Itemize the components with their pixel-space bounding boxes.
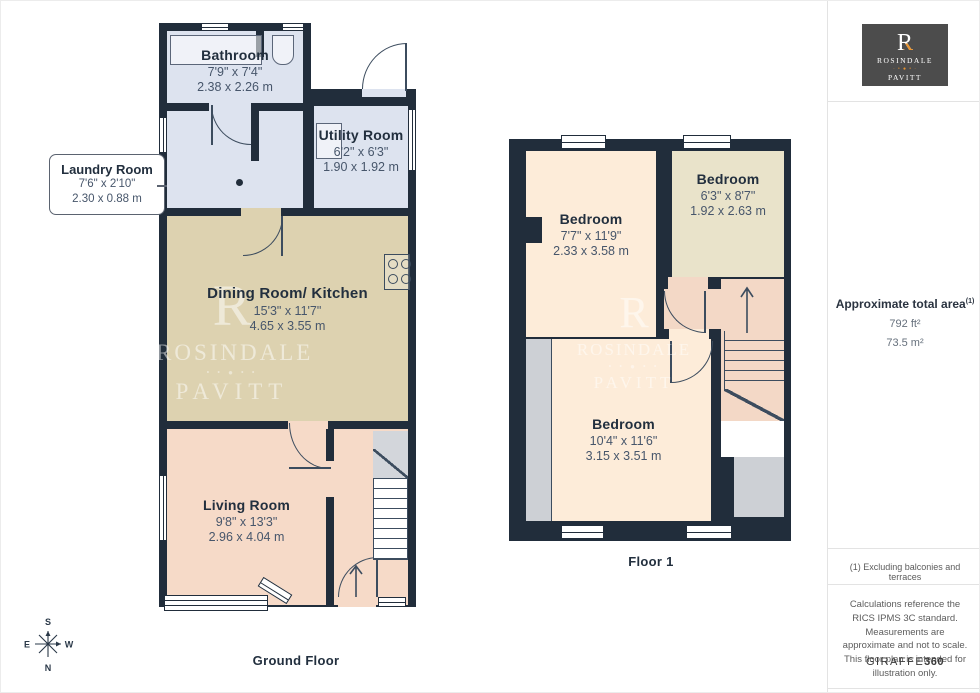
window	[561, 525, 604, 539]
divider	[828, 584, 980, 585]
staircase	[724, 331, 784, 389]
stairs-break-line	[373, 449, 408, 478]
stair-void	[721, 421, 784, 457]
total-area-title: Approximate total area(1)	[828, 297, 980, 311]
info-sidebar: R R ROSINDALE · • ● • · PAVITT Approxima…	[827, 1, 980, 693]
total-area-block: Approximate total area(1) 792 ft² 73.5 m…	[828, 297, 980, 349]
bedroom-left-label: Bedroom 7'7" x 11'9" 2.33 x 3.58 m	[526, 211, 656, 260]
bedroom-small-label: Bedroom 6'3" x 8'7" 1.92 x 2.63 m	[672, 171, 784, 220]
wall	[251, 111, 259, 161]
window	[159, 475, 167, 541]
total-area-imperial: 792 ft²	[828, 318, 980, 330]
door-opening	[668, 277, 708, 289]
door-leaf	[289, 467, 331, 469]
living-room-label: Living Room 9'8" x 13'3" 2.96 x 4.04 m	[167, 497, 326, 546]
dining-kitchen-label: Dining Room/ Kitchen 15'3" x 11'7" 4.65 …	[167, 285, 408, 335]
bedroom-main-label: Bedroom 10'4" x 11'6" 3.15 x 3.51 m	[536, 416, 711, 465]
bay-window	[164, 595, 268, 611]
window	[686, 525, 732, 539]
floorplan-page: R ROSINDALE • • ● • • PAVITT Bathroom 7'…	[0, 0, 980, 693]
compass-east: E	[24, 640, 30, 650]
first-floor-plan: R ROSINDALE • • ● • • PAVITT Bedroom 7'7…	[506, 129, 796, 579]
divider	[828, 101, 980, 102]
window	[683, 135, 731, 149]
door-opening	[241, 208, 281, 216]
footnote-ref: (1)	[966, 298, 975, 305]
compass-south: S	[45, 617, 51, 627]
window	[201, 23, 229, 31]
door-leaf	[376, 557, 378, 597]
door-opening	[362, 89, 406, 97]
ground-floor-title: Ground Floor	[156, 653, 436, 668]
storage-block	[734, 457, 784, 517]
divider	[828, 548, 980, 549]
door-arc	[362, 43, 407, 89]
logo-line2: PAVITT	[862, 73, 948, 84]
floor1-title: Floor 1	[506, 554, 796, 569]
utility-label: Utility Room 6'2" x 6'3" 1.90 x 1.92 m	[314, 127, 408, 176]
entrance-arrow-icon	[348, 561, 364, 599]
callout-leader-line	[157, 185, 167, 187]
window	[378, 597, 406, 607]
window	[561, 135, 606, 149]
disclaimer-text: Calculations reference the RICS IPMS 3C …	[834, 598, 976, 681]
door-leaf	[704, 291, 706, 333]
logo-line1: ROSINDALE	[862, 56, 948, 67]
window	[282, 23, 304, 31]
footnote-text: (1) Excluding balconies and terraces	[834, 562, 976, 582]
total-area-metric: 73.5 m²	[828, 337, 980, 349]
compass-west: W	[65, 640, 74, 650]
door-leaf	[211, 105, 213, 145]
stairs-up-arrow-icon	[738, 283, 756, 335]
window	[159, 117, 167, 153]
compass-star	[35, 631, 61, 657]
stairs-break-line	[724, 389, 784, 421]
bathroom-label: Bathroom 7'9" x 7'4" 2.38 x 2.26 m	[167, 47, 303, 96]
divider	[828, 688, 980, 689]
door-leaf	[281, 216, 283, 256]
giraffe360-logo: GIRAFFE360	[828, 656, 980, 668]
compass-north: N	[45, 663, 52, 673]
compass-rose: S N E W	[19, 613, 77, 677]
door-leaf	[405, 43, 407, 91]
agency-logo: R R ROSINDALE · • ● • · PAVITT	[862, 24, 948, 86]
logo-monogram: R R	[862, 30, 948, 56]
door-leaf	[670, 341, 672, 383]
window	[408, 109, 416, 171]
door-hinge-dot	[236, 179, 243, 186]
staircase	[373, 478, 408, 560]
laundry-room-callout: Laundry Room 7'6" x 2'10" 2.30 x 0.88 m	[49, 154, 165, 215]
ground-floor-plan: R ROSINDALE • • ● • • PAVITT Bathroom 7'…	[156, 9, 436, 669]
